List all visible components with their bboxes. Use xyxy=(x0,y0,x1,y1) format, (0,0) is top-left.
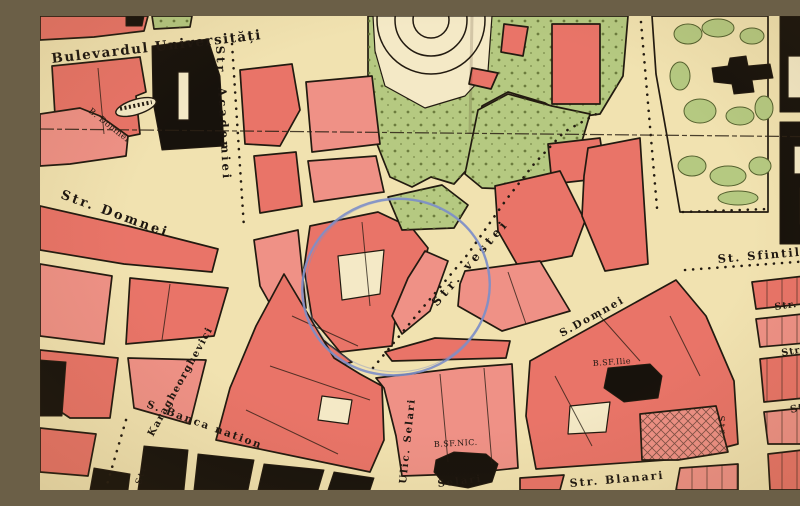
block-d6 xyxy=(40,428,96,476)
map-layers: Bulevardul UniversitățiStr. AcademieiB. … xyxy=(40,16,800,490)
bank-black-2 xyxy=(194,454,254,490)
block-academiei-e2 xyxy=(306,76,380,152)
block-d4-black xyxy=(40,360,66,416)
black-ne-1-court xyxy=(788,56,800,98)
black-ne-2-court-a xyxy=(794,146,800,174)
block-g1-hatch-parcels xyxy=(640,406,728,460)
garden-tree-blob-0 xyxy=(674,24,702,44)
garden-tree-blob-7 xyxy=(678,156,706,176)
block-m1-court xyxy=(318,396,352,424)
garden-tree-blob-6 xyxy=(755,96,773,120)
park-building-large xyxy=(552,24,600,104)
black-ne-2 xyxy=(780,122,800,244)
central-court xyxy=(338,250,384,300)
university-court xyxy=(178,72,189,120)
block-bb1b-parcels xyxy=(676,464,738,490)
garden-tree-blob-5 xyxy=(726,107,754,125)
green-top-left-b-trees xyxy=(152,16,192,29)
block-bb1a xyxy=(520,475,564,490)
map-screenshot[interactable]: Bulevardul UniversitățiStr. AcademieiB. … xyxy=(40,16,800,490)
black-top-small xyxy=(126,16,144,26)
block-g1-court xyxy=(568,402,610,434)
garden-tree-blob-3 xyxy=(670,62,690,90)
block-academiei-e3 xyxy=(254,152,302,213)
block-d2 xyxy=(40,264,112,344)
map-label-str-br-vertical: Str xyxy=(715,415,727,436)
garden-tree-blob-9 xyxy=(749,157,771,175)
garden-tree-blob-2 xyxy=(740,28,764,44)
garden-tree-blob-4 xyxy=(684,99,716,123)
garden-tree-blob-8 xyxy=(710,166,746,186)
block-r5-parcels xyxy=(768,448,800,490)
garden-tree-blob-1 xyxy=(702,19,734,37)
garden-tree-blob-10 xyxy=(718,191,758,205)
park-building-b xyxy=(501,24,528,56)
city-map-svg[interactable]: Bulevardul UniversitățiStr. AcademieiB. … xyxy=(40,16,800,490)
paper-crease xyxy=(470,16,472,134)
